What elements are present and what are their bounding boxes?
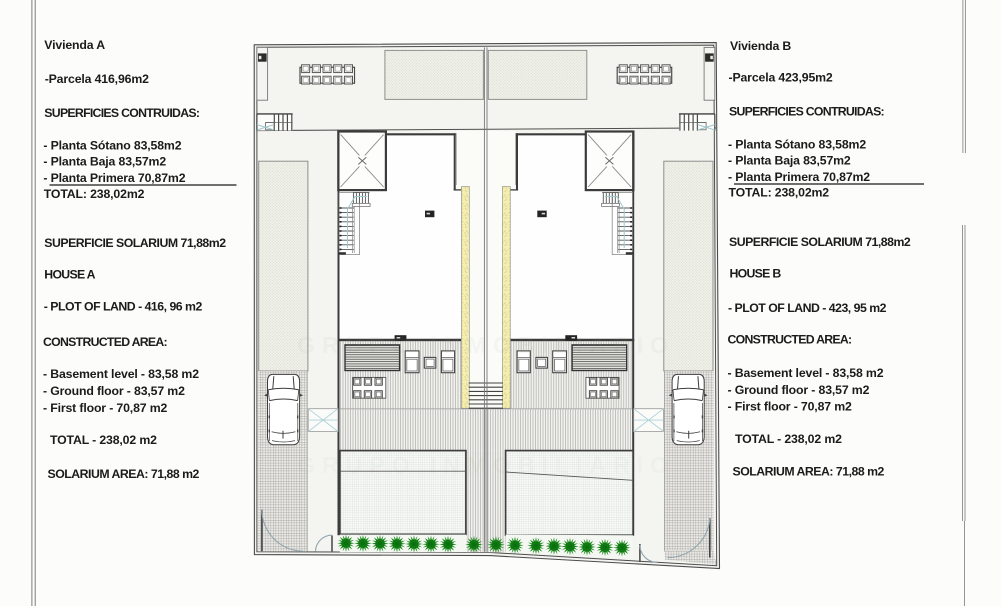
svg-text:TOTAL - 238,02 m2: TOTAL - 238,02 m2	[50, 433, 157, 447]
svg-text:TOTAL: 238,02m2: TOTAL: 238,02m2	[729, 186, 830, 200]
svg-text:SUPERFICIES CONTRUIDAS:: SUPERFICIES CONTRUIDAS:	[729, 105, 884, 119]
svg-text:- First floor - 70,87 m2: - First floor - 70,87 m2	[43, 401, 167, 415]
svg-text:- Planta Baja 83,57m2: - Planta Baja 83,57m2	[728, 154, 851, 168]
svg-text:HOUSE A: HOUSE A	[44, 268, 95, 282]
svg-text:SOLARIUM AREA: 71,88 m2: SOLARIUM AREA: 71,88 m2	[48, 467, 200, 481]
svg-text:- Ground floor - 83,57 m2: - Ground floor - 83,57 m2	[728, 383, 870, 397]
svg-text:GRUPO INMOBILIARIO: GRUPO INMOBILIARIO	[297, 332, 675, 358]
svg-text:GRUPO INMOBILIARIO: GRUPO INMOBILIARIO	[297, 452, 675, 478]
svg-text:SUPERFICIES CONTRUIDAS:: SUPERFICIES CONTRUIDAS:	[44, 106, 199, 120]
svg-text:-Parcela 416,96m2: -Parcela 416,96m2	[45, 72, 149, 86]
svg-text:TOTAL: 238,02m2: TOTAL: 238,02m2	[44, 187, 145, 201]
svg-text:- First floor - 70,87 m2: - First floor - 70,87 m2	[728, 400, 852, 414]
svg-text:- Planta Sótano 83,58m2: - Planta Sótano 83,58m2	[43, 139, 181, 153]
svg-text:Vivienda A: Vivienda A	[44, 38, 105, 52]
svg-text:- PLOT OF LAND - 416, 96 m2: - PLOT OF LAND - 416, 96 m2	[44, 300, 203, 314]
svg-text:SUPERFICIE SOLARIUM 71,88m2: SUPERFICIE SOLARIUM 71,88m2	[44, 236, 226, 250]
svg-text:- Basement level - 83,58 m2: - Basement level - 83,58 m2	[43, 367, 199, 381]
svg-text:-Parcela 423,95m2: -Parcela 423,95m2	[729, 71, 833, 85]
svg-text:- PLOT OF LAND - 423, 95 m2: - PLOT OF LAND - 423, 95 m2	[728, 301, 887, 315]
svg-text:- Ground floor - 83,57 m2: - Ground floor - 83,57 m2	[43, 384, 185, 398]
svg-text:SUPERFICIE SOLARIUM 71,88m2: SUPERFICIE SOLARIUM 71,88m2	[729, 235, 911, 249]
svg-text:- Planta Primera 70,87m2: - Planta Primera 70,87m2	[728, 170, 870, 184]
svg-text:- Planta Baja 83,57m2: - Planta Baja 83,57m2	[43, 155, 166, 169]
svg-text:CONSTRUCTED AREA:: CONSTRUCTED AREA:	[728, 333, 852, 347]
svg-text:HOUSE B: HOUSE B	[730, 267, 782, 281]
svg-text:TOTAL - 238,02 m2: TOTAL - 238,02 m2	[735, 432, 842, 446]
svg-text:- Planta Sótano 83,58m2: - Planta Sótano 83,58m2	[728, 138, 866, 152]
svg-text:SOLARIUM AREA: 71,88 m2: SOLARIUM AREA: 71,88 m2	[733, 465, 885, 479]
svg-text:Vivienda B: Vivienda B	[730, 39, 791, 53]
svg-text:- Planta Primera 70,87m2: - Planta Primera 70,87m2	[43, 171, 185, 185]
svg-text:- Basement level - 83,58 m2: - Basement level - 83,58 m2	[728, 366, 884, 380]
svg-text:CONSTRUCTED AREA:: CONSTRUCTED AREA:	[43, 335, 167, 349]
